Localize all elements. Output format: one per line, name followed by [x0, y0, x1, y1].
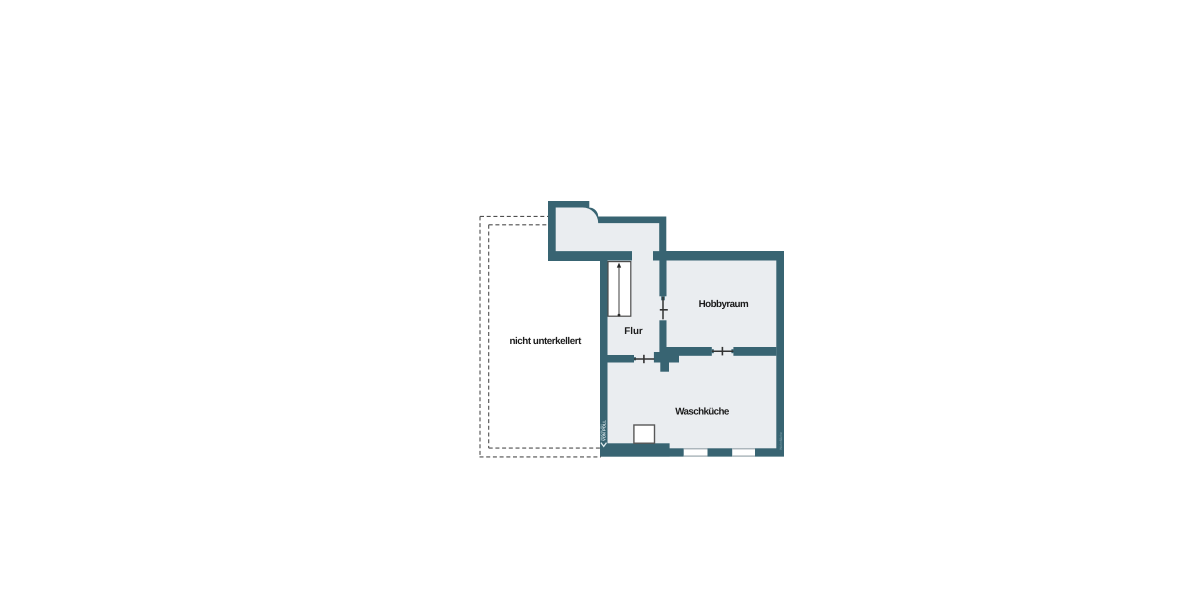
svg-text:Waschküche: Waschküche [675, 406, 730, 417]
svg-text:IMMOBILIEN: IMMOBILIEN [600, 425, 604, 441]
svg-text:Flur: Flur [624, 326, 643, 337]
svg-text:nicht unterkellert: nicht unterkellert [510, 336, 583, 347]
svg-text:Hobbyraum: Hobbyraum [699, 299, 749, 310]
svg-text:Wohnfläche: Wohnfläche [779, 432, 783, 450]
